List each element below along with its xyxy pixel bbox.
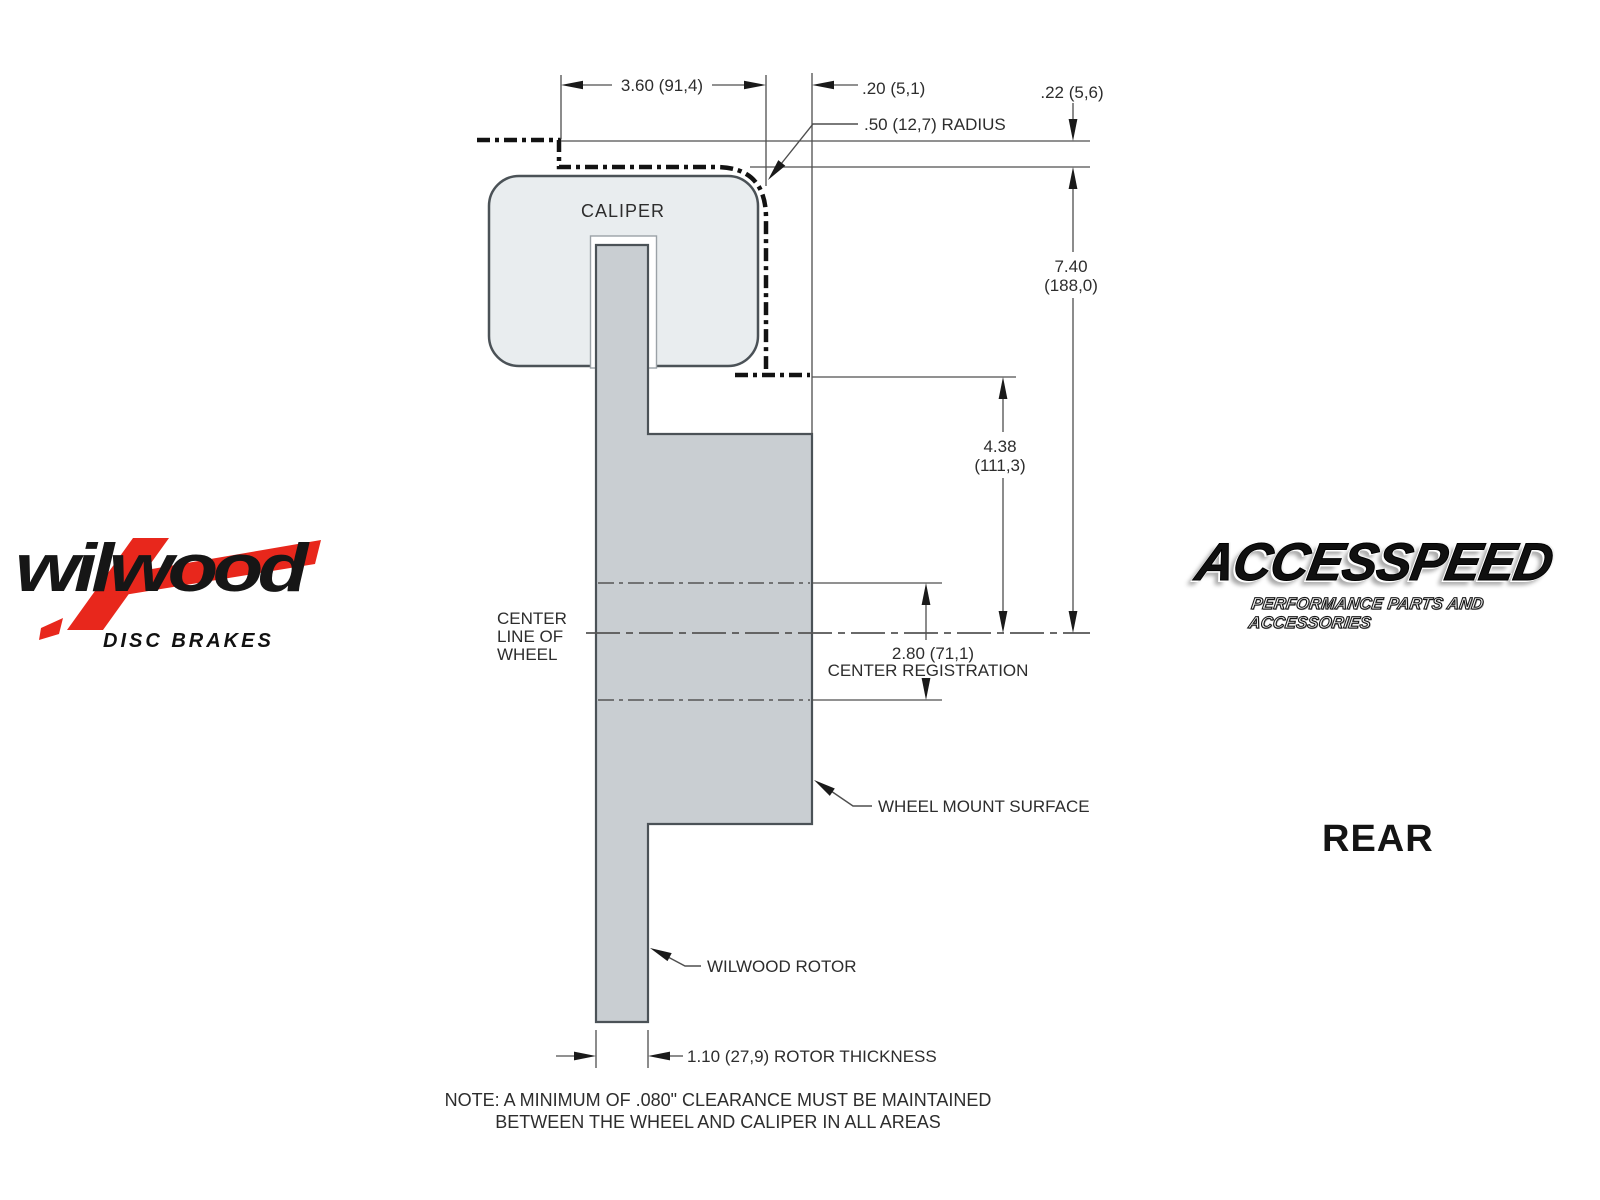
accesspeed-wordmark: ACCESSPEED [1192, 536, 1600, 589]
dim-mount-offset-label: .20 (5,1) [862, 79, 925, 98]
wilwood-rotor-label: WILWOOD ROTOR [707, 957, 857, 976]
view-label-rear: REAR [1322, 818, 1434, 861]
dim-mount-depth-in: 4.38 [983, 437, 1016, 456]
dim-corner-radius-label: .50 (12,7) RADIUS [864, 115, 1006, 134]
clearance-note-line2: BETWEEN THE WHEEL AND CALIPER IN ALL ARE… [495, 1112, 940, 1132]
dim-radial-height-in: 7.40 [1054, 257, 1087, 276]
dim-mount-depth-mm: (111,3) [974, 456, 1025, 475]
wilwood-logo: wilwood DISC BRAKES [15, 512, 335, 662]
wilwood-wordmark: wilwood [15, 534, 303, 602]
centerline-label-line2: LINE OF [497, 627, 563, 646]
dim-caliper-width-label: 3.60 (91,4) [621, 76, 703, 95]
dim-wheel-clearance-label: .22 (5,6) [1040, 83, 1103, 102]
centerline-label-line1: CENTER [497, 609, 567, 628]
wheel-mount-surface-label: WHEEL MOUNT SURFACE [878, 797, 1090, 816]
centerline-label-line3: WHEEL [497, 645, 557, 664]
accesspeed-tagline: PERFORMANCE PARTS AND ACCESSORIES [1247, 595, 1594, 633]
caliper-label: CALIPER [581, 201, 665, 221]
wilwood-tagline: DISC BRAKES [103, 630, 274, 653]
dim-center-registration-label: CENTER REGISTRATION [828, 661, 1029, 680]
dim-radial-height-mm: (188,0) [1044, 276, 1098, 295]
clearance-note-line1: NOTE: A MINIMUM OF .080" CLEARANCE MUST … [445, 1090, 992, 1110]
brake-dimension-diagram-page: CALIPER [0, 0, 1600, 1200]
dim-rotor-thickness-label: 1.10 (27,9) ROTOR THICKNESS [687, 1047, 937, 1066]
accesspeed-logo: ACCESSPEED PERFORMANCE PARTS AND ACCESSO… [1192, 536, 1592, 656]
